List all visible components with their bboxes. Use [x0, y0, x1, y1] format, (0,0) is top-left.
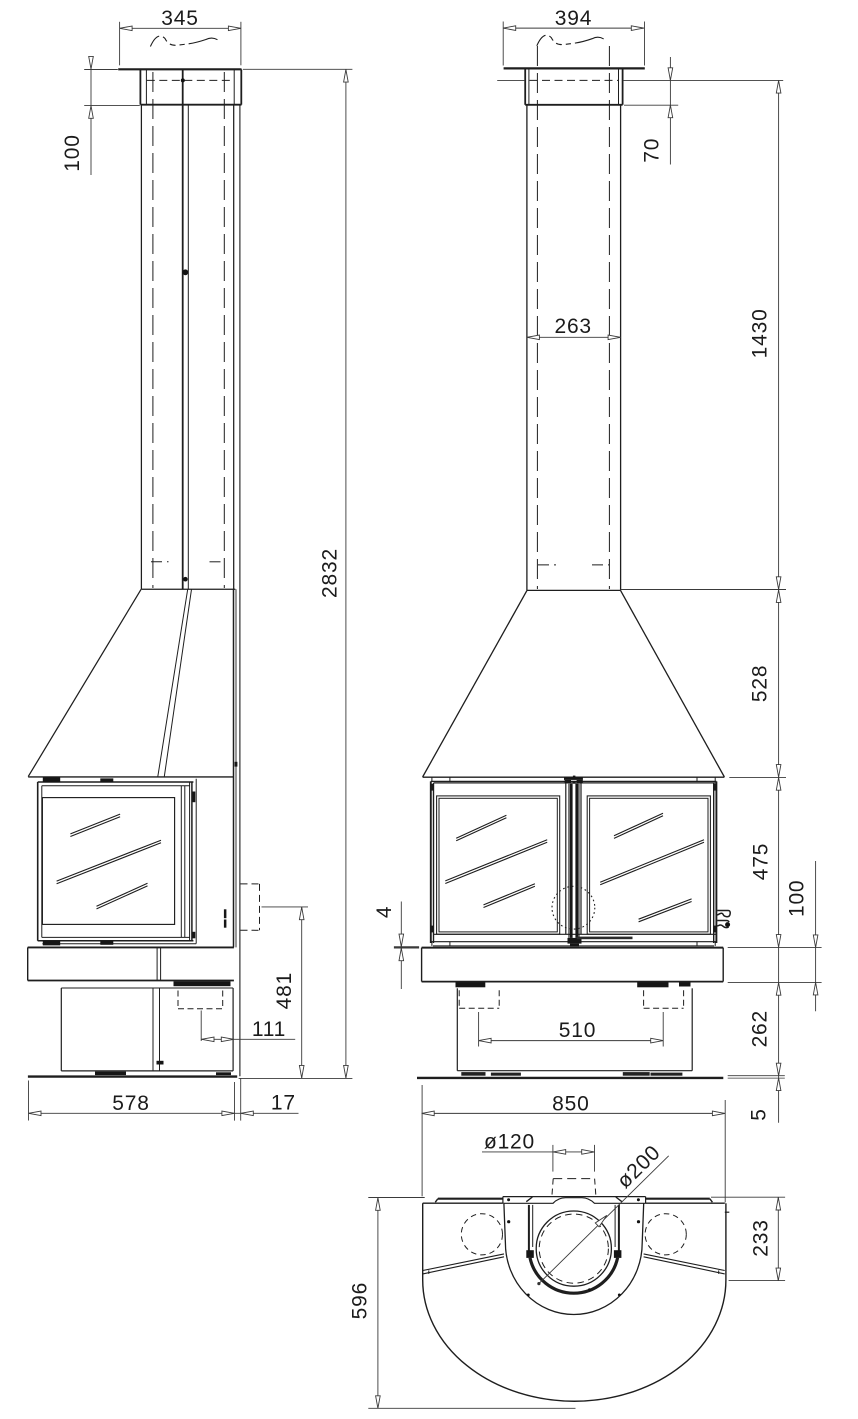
svg-text:596: 596 [349, 1282, 372, 1319]
svg-text:1430: 1430 [748, 308, 771, 358]
svg-text:263: 263 [554, 315, 591, 338]
svg-text:100: 100 [61, 134, 84, 171]
svg-text:70: 70 [641, 138, 664, 163]
svg-text:345: 345 [161, 7, 198, 30]
svg-text:481: 481 [273, 972, 296, 1009]
svg-text:528: 528 [748, 665, 771, 702]
svg-text:475: 475 [750, 843, 773, 880]
svg-text:4: 4 [373, 906, 396, 918]
svg-text:ø120: ø120 [484, 1131, 535, 1154]
svg-text:262: 262 [749, 1010, 772, 1047]
svg-text:17: 17 [271, 1092, 296, 1115]
svg-text:2832: 2832 [319, 548, 342, 598]
svg-text:510: 510 [559, 1019, 596, 1042]
svg-text:5: 5 [747, 1108, 770, 1120]
svg-text:850: 850 [552, 1092, 589, 1115]
svg-text:394: 394 [555, 7, 592, 30]
svg-text:111: 111 [252, 1018, 286, 1041]
svg-text:233: 233 [749, 1219, 772, 1256]
svg-text:100: 100 [786, 880, 809, 917]
svg-text:578: 578 [112, 1092, 149, 1115]
